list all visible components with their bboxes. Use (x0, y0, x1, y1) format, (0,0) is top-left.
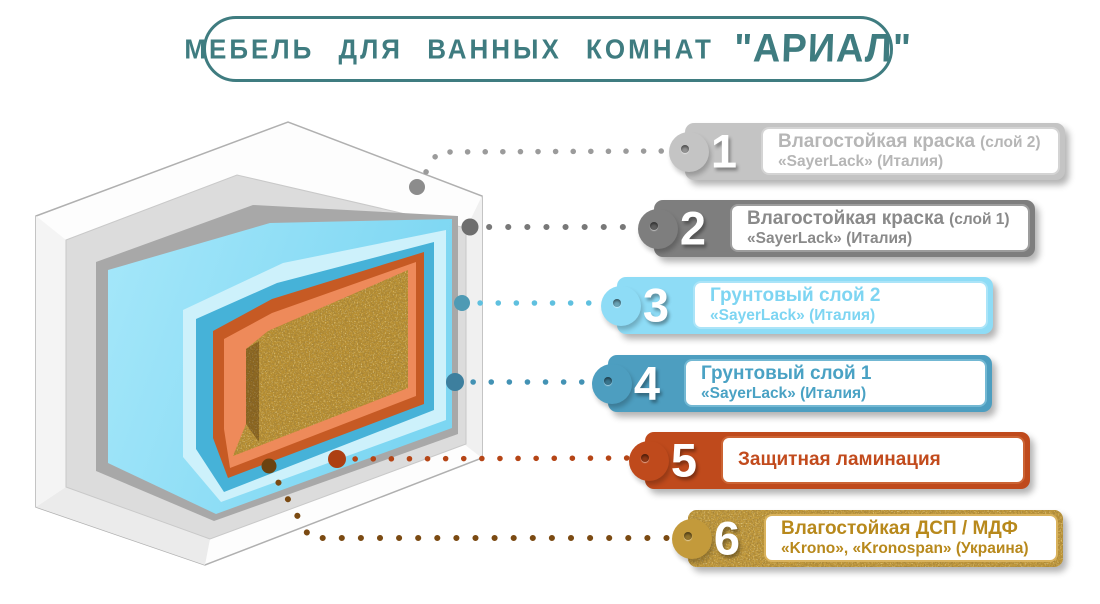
layer-label-4: 4 Грунтовый слой 1 «SayerLack» (Италия) (608, 355, 992, 412)
brand-name: "АРИАЛ" (733, 26, 912, 71)
layer-title: Влагостойкая ДСП / МДФ (781, 518, 1018, 539)
layer-number: 4 (616, 355, 678, 410)
layer-subtitle: «Krono», «Kronospan» (Украина) (781, 540, 1056, 559)
anchor-dot-3 (454, 295, 470, 311)
anchor-dot-4 (446, 373, 464, 391)
layer-label-5: 5 Защитная ламинация (645, 432, 1030, 489)
layer-title: Защитная ламинация (738, 449, 941, 470)
tag-hole-icon (613, 299, 621, 307)
label-text-panel: Грунтовый слой 2 «SayerLack» (Италия) (693, 281, 988, 329)
layer-label-1: 1 Влагостойкая краска(слой 2) «SayerLack… (685, 123, 1065, 180)
layer-subtitle: «SayerLack» (Италия) (701, 385, 985, 404)
layer-title: Грунтовый слой 1 (701, 363, 872, 384)
layer-subtitle: «SayerLack» (Италия) (747, 230, 1028, 249)
infographic-canvas: МЕБЕЛЬ ДЛЯ ВАННЫХ КОМНАТ "АРИАЛ" 1 Влаго… (0, 0, 1100, 604)
layer-number: 3 (625, 277, 687, 332)
label-text-panel: Защитная ламинация (721, 436, 1025, 484)
layer-label-3: 3 Грунтовый слой 2 «SayerLack» (Италия) (617, 277, 993, 334)
tag-hole-icon (604, 377, 612, 385)
title-banner: МЕБЕЛЬ ДЛЯ ВАННЫХ КОМНАТ "АРИАЛ" (203, 16, 893, 82)
anchor-dot-6 (262, 459, 277, 474)
anchor-dot-2 (462, 219, 479, 236)
layer-title: Влагостойкая краска (747, 208, 944, 229)
layer-label-6: 6 Влагостойкая ДСП / МДФ «Krono», «Krono… (688, 510, 1063, 567)
layer-number: 2 (662, 200, 724, 255)
label-text-panel: Влагостойкая краска(слой 2) «SayerLack» … (761, 127, 1060, 175)
layer-number: 1 (693, 123, 755, 178)
layer-title-suffix: (слой 1) (949, 211, 1010, 228)
leader-line-1 (417, 151, 668, 187)
tag-hole-icon (681, 145, 689, 153)
white-shell-right-shade (464, 196, 482, 458)
label-text-panel: Влагостойкая краска(слой 1) «SayerLack» … (730, 204, 1030, 252)
layer-title: Грунтовый слой 2 (710, 285, 881, 306)
label-text-panel: Грунтовый слой 1 «SayerLack» (Италия) (684, 359, 987, 407)
layer-subtitle: «SayerLack» (Италия) (710, 307, 986, 326)
page-title: МЕБЕЛЬ ДЛЯ ВАННЫХ КОМНАТ (184, 32, 714, 65)
layer-title-suffix: (слой 2) (980, 134, 1041, 151)
anchor-dot-1 (409, 179, 425, 195)
layer-number: 5 (653, 432, 715, 487)
layer-number: 6 (696, 510, 758, 565)
tag-hole-icon (684, 532, 692, 540)
layer-label-2: 2 Влагостойкая краска(слой 1) «SayerLack… (654, 200, 1035, 257)
layer-title: Влагостойкая краска (778, 131, 975, 152)
tag-hole-icon (641, 454, 649, 462)
white-shell-left-shade (36, 216, 66, 507)
tag-hole-icon (650, 222, 658, 230)
layer-subtitle: «SayerLack» (Италия) (778, 153, 1058, 172)
anchor-dot-5 (328, 450, 346, 468)
label-text-panel: Влагостойкая ДСП / МДФ «Krono», «Kronosp… (764, 514, 1058, 562)
